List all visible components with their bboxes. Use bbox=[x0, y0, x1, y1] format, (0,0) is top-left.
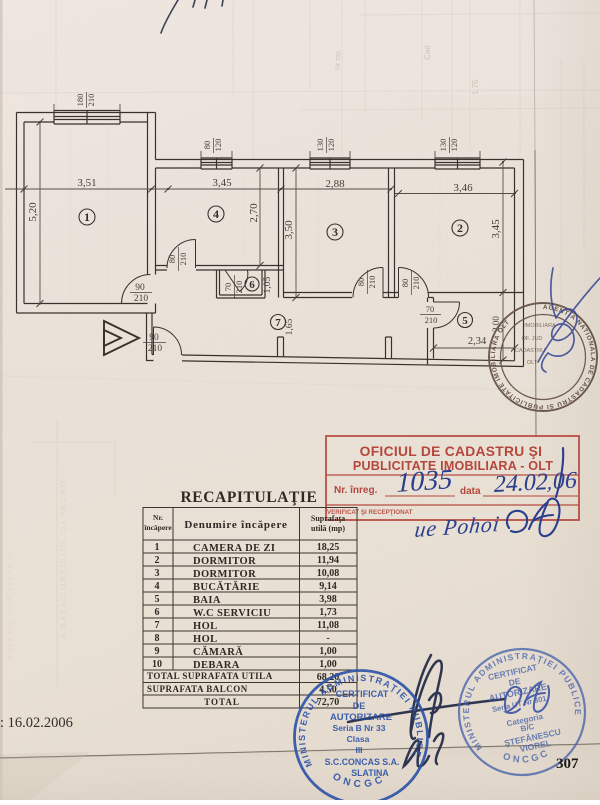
svg-text:90: 90 bbox=[135, 283, 145, 293]
svg-text:CĂMARĂ: CĂMARĂ bbox=[193, 646, 243, 658]
svg-text:data: data bbox=[460, 486, 481, 497]
svg-text:TOTAL: TOTAL bbox=[204, 697, 240, 707]
svg-text:1,00: 1,00 bbox=[319, 659, 337, 670]
svg-text:24.02,06: 24.02,06 bbox=[492, 467, 579, 498]
svg-text:încăpere: încăpere bbox=[143, 523, 172, 532]
svg-text:4: 4 bbox=[213, 207, 219, 221]
svg-text:2,88: 2,88 bbox=[325, 178, 345, 190]
svg-text:AUTORIZARE: AUTORIZARE bbox=[330, 712, 392, 723]
svg-text:80: 80 bbox=[202, 141, 212, 150]
svg-text:7: 7 bbox=[155, 620, 160, 631]
svg-text:1,73: 1,73 bbox=[319, 607, 337, 618]
svg-text:1: 1 bbox=[155, 542, 160, 553]
svg-text:3,45: 3,45 bbox=[490, 219, 502, 239]
svg-text:6: 6 bbox=[155, 607, 160, 618]
svg-text:A RATA CONSILIUL OJ PRUND: A RATA CONSILIUL OJ PRUND bbox=[59, 479, 68, 640]
svg-text:IMOBILIARA: IMOBILIARA bbox=[524, 323, 556, 329]
svg-text:1.75: 1.75 bbox=[471, 79, 480, 95]
svg-text:2: 2 bbox=[457, 221, 463, 235]
svg-text:HOL: HOL bbox=[193, 634, 218, 645]
svg-text:BUCĂTĂRIE: BUCĂTĂRIE bbox=[193, 581, 260, 593]
svg-text:210: 210 bbox=[86, 94, 96, 107]
svg-text:8: 8 bbox=[155, 633, 160, 644]
svg-text:10,08: 10,08 bbox=[317, 568, 340, 579]
svg-text:70: 70 bbox=[223, 283, 233, 292]
svg-text:210: 210 bbox=[425, 315, 438, 325]
svg-text:80: 80 bbox=[167, 255, 177, 264]
svg-text:OFICIUL DE CADASTRU ŞI: OFICIUL DE CADASTRU ŞI bbox=[360, 444, 543, 459]
svg-text:120: 120 bbox=[449, 139, 459, 152]
svg-text:1,65: 1,65 bbox=[285, 318, 295, 335]
svg-text:210: 210 bbox=[234, 281, 244, 294]
svg-text:Nr.: Nr. bbox=[153, 513, 163, 522]
svg-text:Seria B Nr 33: Seria B Nr 33 bbox=[333, 723, 386, 733]
svg-text:5,20: 5,20 bbox=[27, 202, 39, 222]
svg-text:Nr top: Nr top bbox=[335, 51, 342, 70]
svg-text:18,25: 18,25 bbox=[317, 542, 340, 553]
svg-text:3,50: 3,50 bbox=[283, 220, 295, 240]
svg-text:130: 130 bbox=[315, 139, 325, 152]
svg-text:5: 5 bbox=[155, 594, 160, 605]
svg-text:SOILEA COMSILIA AL: SOILEA COMSILIA AL bbox=[5, 544, 14, 660]
svg-text:DORMITOR: DORMITOR bbox=[193, 556, 256, 567]
svg-text:210: 210 bbox=[148, 344, 163, 354]
svg-text:SLATINA: SLATINA bbox=[351, 768, 389, 778]
svg-text:180: 180 bbox=[75, 94, 85, 107]
svg-text:OF. JUD: OF. JUD bbox=[522, 336, 543, 342]
svg-text:BAIA: BAIA bbox=[193, 595, 221, 606]
svg-text:3,98: 3,98 bbox=[319, 594, 337, 605]
svg-text:6: 6 bbox=[249, 279, 255, 291]
svg-text:DE: DE bbox=[353, 701, 366, 711]
svg-text:: 16.02.2006: : 16.02.2006 bbox=[0, 715, 73, 731]
svg-text:80: 80 bbox=[356, 278, 366, 287]
svg-text:210: 210 bbox=[134, 294, 149, 304]
svg-text:2: 2 bbox=[155, 555, 160, 566]
svg-text:210: 210 bbox=[411, 277, 421, 290]
svg-text:120: 120 bbox=[326, 139, 336, 152]
svg-text:3: 3 bbox=[332, 225, 338, 239]
svg-text:3,51: 3,51 bbox=[77, 177, 96, 189]
svg-text:Cad: Cad bbox=[423, 45, 432, 60]
svg-text:Denumire încăpere: Denumire încăpere bbox=[184, 519, 287, 531]
svg-text:HOL: HOL bbox=[193, 621, 218, 632]
svg-text:307: 307 bbox=[556, 756, 579, 772]
svg-text:CADASTRU: CADASTRU bbox=[515, 348, 545, 354]
svg-text:CERTIFICAT: CERTIFICAT bbox=[336, 689, 389, 699]
svg-text:11,08: 11,08 bbox=[317, 620, 339, 631]
svg-text:OLT: OLT bbox=[527, 360, 538, 366]
svg-text:1,05: 1,05 bbox=[263, 276, 273, 293]
svg-text:2,70: 2,70 bbox=[248, 203, 260, 223]
svg-text:CAMERA DE ZI: CAMERA DE ZI bbox=[193, 543, 275, 554]
svg-text:TOTAL SUPRAFATA UTILA: TOTAL SUPRAFATA UTILA bbox=[147, 671, 273, 681]
svg-text:9,14: 9,14 bbox=[319, 581, 337, 592]
svg-text:210: 210 bbox=[367, 276, 377, 289]
svg-text:Nr. înreg.: Nr. înreg. bbox=[334, 485, 378, 496]
svg-text:-: - bbox=[326, 633, 329, 644]
svg-text:11,94: 11,94 bbox=[317, 555, 339, 566]
svg-text:4: 4 bbox=[155, 581, 160, 592]
svg-text:5: 5 bbox=[462, 315, 468, 327]
svg-text:SUPRAFATA BALCON: SUPRAFATA BALCON bbox=[147, 684, 248, 694]
svg-text:2,34: 2,34 bbox=[468, 336, 487, 347]
svg-text:W.C SERVICIU: W.C SERVICIU bbox=[193, 608, 271, 619]
svg-text:3,45: 3,45 bbox=[212, 177, 232, 189]
svg-text:S.C.CONCAS S.A.: S.C.CONCAS S.A. bbox=[325, 757, 400, 767]
svg-text:Clasa: Clasa bbox=[347, 734, 370, 744]
svg-text:Suprafaţa: Suprafaţa bbox=[311, 514, 345, 523]
svg-text:80: 80 bbox=[400, 279, 410, 288]
svg-text:1,00: 1,00 bbox=[319, 646, 337, 657]
svg-text:90: 90 bbox=[149, 333, 159, 343]
svg-text:DEBARA: DEBARA bbox=[193, 660, 240, 671]
svg-text:DORMITOR: DORMITOR bbox=[193, 569, 256, 580]
svg-text:III: III bbox=[355, 745, 362, 755]
svg-text:210: 210 bbox=[178, 253, 188, 266]
svg-text:3,46: 3,46 bbox=[453, 182, 473, 194]
svg-text:3: 3 bbox=[155, 568, 160, 579]
svg-text:120: 120 bbox=[213, 139, 223, 152]
svg-text:RECAPITULAŢIE: RECAPITULAŢIE bbox=[181, 489, 318, 506]
svg-text:1035: 1035 bbox=[394, 464, 455, 499]
svg-text:7: 7 bbox=[275, 317, 281, 329]
svg-text:9: 9 bbox=[155, 646, 160, 657]
svg-text:1: 1 bbox=[84, 210, 90, 224]
svg-text:10: 10 bbox=[152, 659, 162, 670]
svg-text:utilă (mp): utilă (mp) bbox=[311, 524, 345, 533]
svg-text:70: 70 bbox=[426, 304, 435, 314]
svg-text:130: 130 bbox=[438, 139, 448, 152]
